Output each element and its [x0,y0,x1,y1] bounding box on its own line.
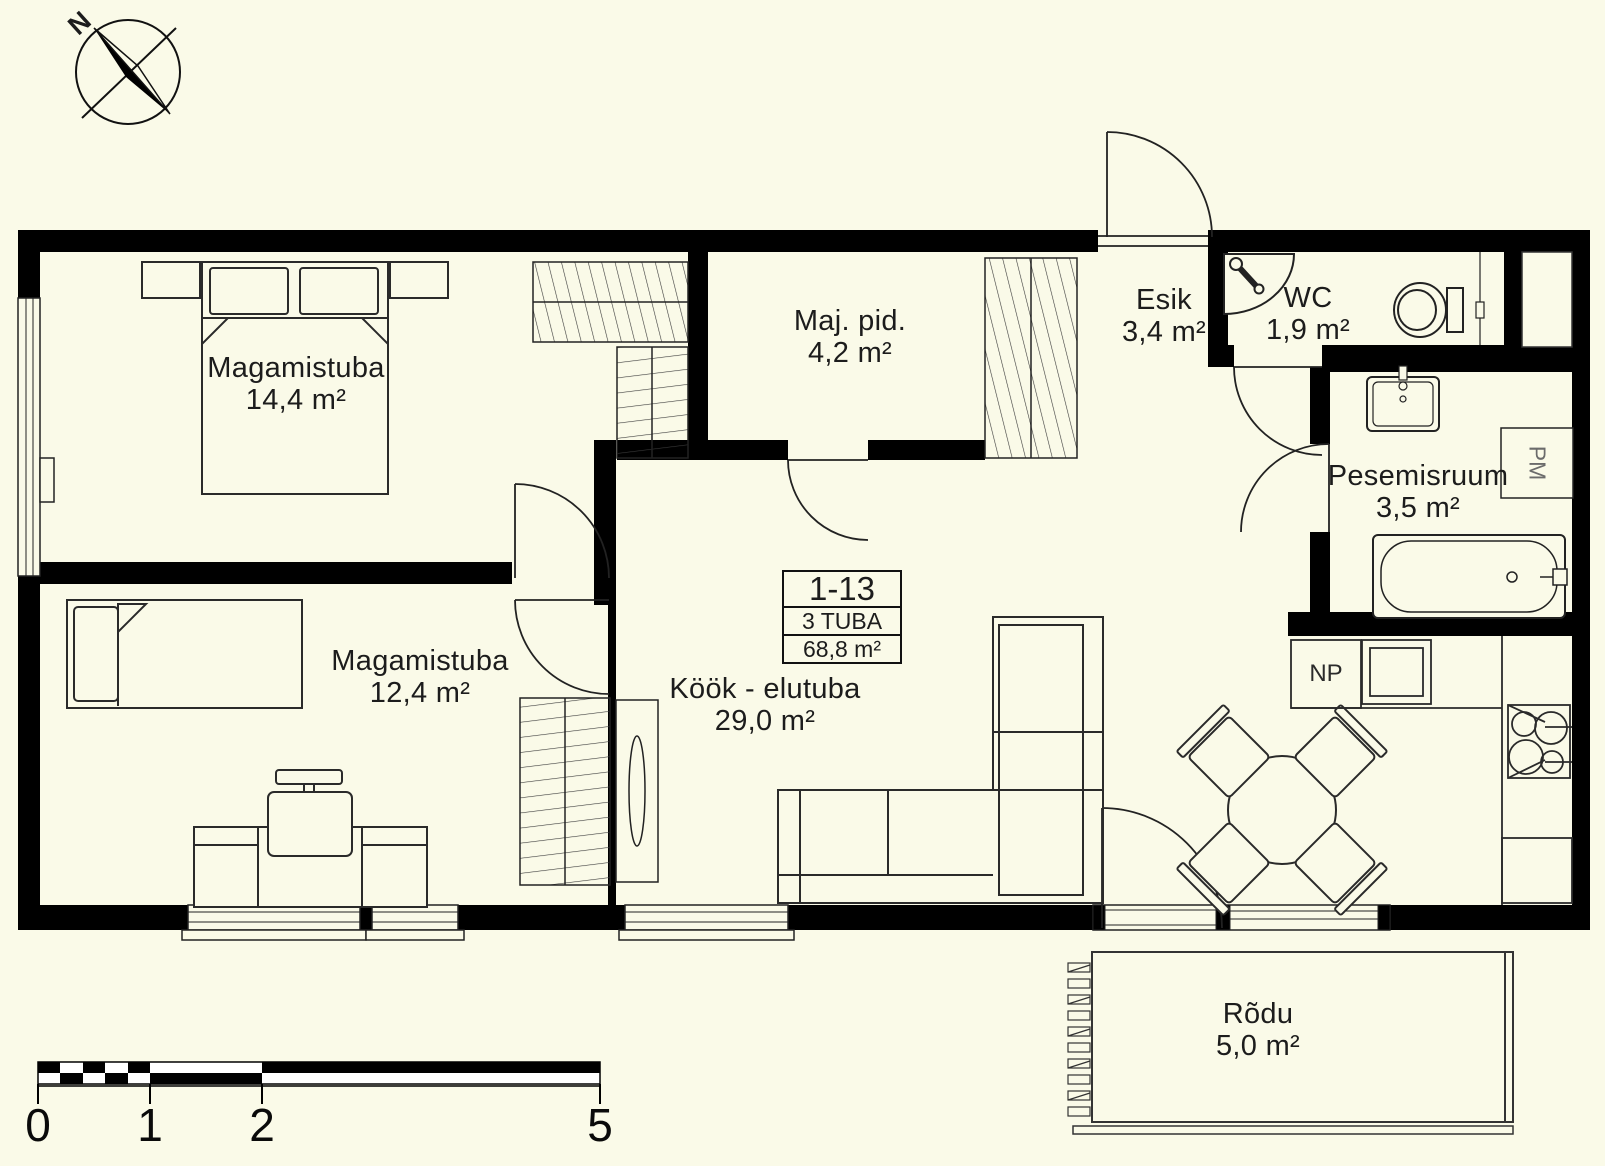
room-area: 3,5 m² [1376,492,1460,524]
room-label-kook-elutuba: Köök - elutuba 29,0 m² [669,673,860,738]
toilet [1394,252,1484,345]
desk-chair [268,770,352,856]
dining-chair [1177,705,1273,801]
unit-total-area: 68,8 m² [784,634,900,662]
sliding-door-panel [616,700,658,882]
unit-number: 1-13 [784,572,900,606]
hall-wardrobe-top [533,262,688,342]
dining-set [1177,705,1388,916]
window-bottom-3 [619,905,794,940]
dining-chair [1291,705,1387,801]
compass-needle-outline [94,28,170,114]
room-name: Magamistuba [331,645,508,677]
nightstand-right [390,262,448,298]
washbasin [1367,366,1439,431]
room-area: 14,4 m² [246,384,346,416]
room-area: 4,2 m² [808,337,892,369]
service-shaft [1522,252,1572,347]
room-label-maj-pid: Maj. pid. 4,2 m² [794,305,906,370]
unit-info-box: 1-13 3 TUBA 68,8 m² [782,570,902,664]
wc-fixtures [1224,252,1484,345]
single-bed [67,600,302,708]
room-name: Esik [1136,284,1192,316]
bathtub [1373,535,1567,618]
scale-label-0: 0 [25,1098,51,1152]
entrance-door [1098,132,1212,252]
floor-plan-page: N Magamistuba 14,4 m² Magamistuba 12,4 m… [0,0,1605,1166]
hall-wardrobe-side [617,347,688,458]
nightstand-left [142,262,200,298]
scale-label-1: 1 [137,1098,163,1152]
bathroom-door [1241,444,1329,532]
room-area: 12,4 m² [370,677,470,709]
room-name: Maj. pid. [794,305,906,337]
scale-bar [38,1062,600,1104]
room-label-pesemisruum: Pesemisruum 3,5 m² [1328,460,1509,525]
wc-door [1234,367,1322,455]
scale-label-5: 5 [587,1098,613,1152]
room-label-magamistuba-1: Magamistuba 14,4 m² [207,352,384,417]
room-label-wc: WC 1,9 m² [1266,282,1350,347]
stove [1508,705,1572,778]
room-area: 1,9 m² [1266,314,1350,346]
entry-wardrobe [985,258,1077,458]
room-name: Köök - elutuba [669,673,860,705]
room-label-esik: Esik 3,4 m² [1122,284,1206,349]
window-left [18,298,54,576]
room-label-rodu: Rõdu 5,0 m² [1216,998,1300,1063]
sink-appliance [1362,640,1431,704]
scale-label-2: 2 [249,1098,275,1152]
room-area: 5,0 m² [1216,1030,1300,1062]
dining-chair [1177,819,1273,915]
room-label-magamistuba-2: Magamistuba 12,4 m² [331,645,508,710]
window-bottom-1 [182,905,366,940]
room-name: WC [1284,282,1333,314]
room-area: 29,0 m² [715,705,815,737]
room-name: Rõdu [1223,998,1294,1030]
utility-room-door [788,460,868,540]
room-area: 3,4 m² [1122,316,1206,348]
washing-machine-label: PM [1524,446,1551,481]
room-name: Pesemisruum [1328,460,1509,492]
dining-chair [1291,819,1387,915]
window-bottom-2 [366,905,464,940]
fridge-box [1502,838,1572,903]
unit-room-count: 3 TUBA [784,606,900,634]
compass-rose [76,20,180,124]
balcony-rail-hatch [1068,963,1090,1116]
dishwasher-label: NP [1309,660,1342,688]
living-wardrobe [520,698,610,885]
room-name: Magamistuba [207,352,384,384]
bedroom2-door [515,600,609,694]
